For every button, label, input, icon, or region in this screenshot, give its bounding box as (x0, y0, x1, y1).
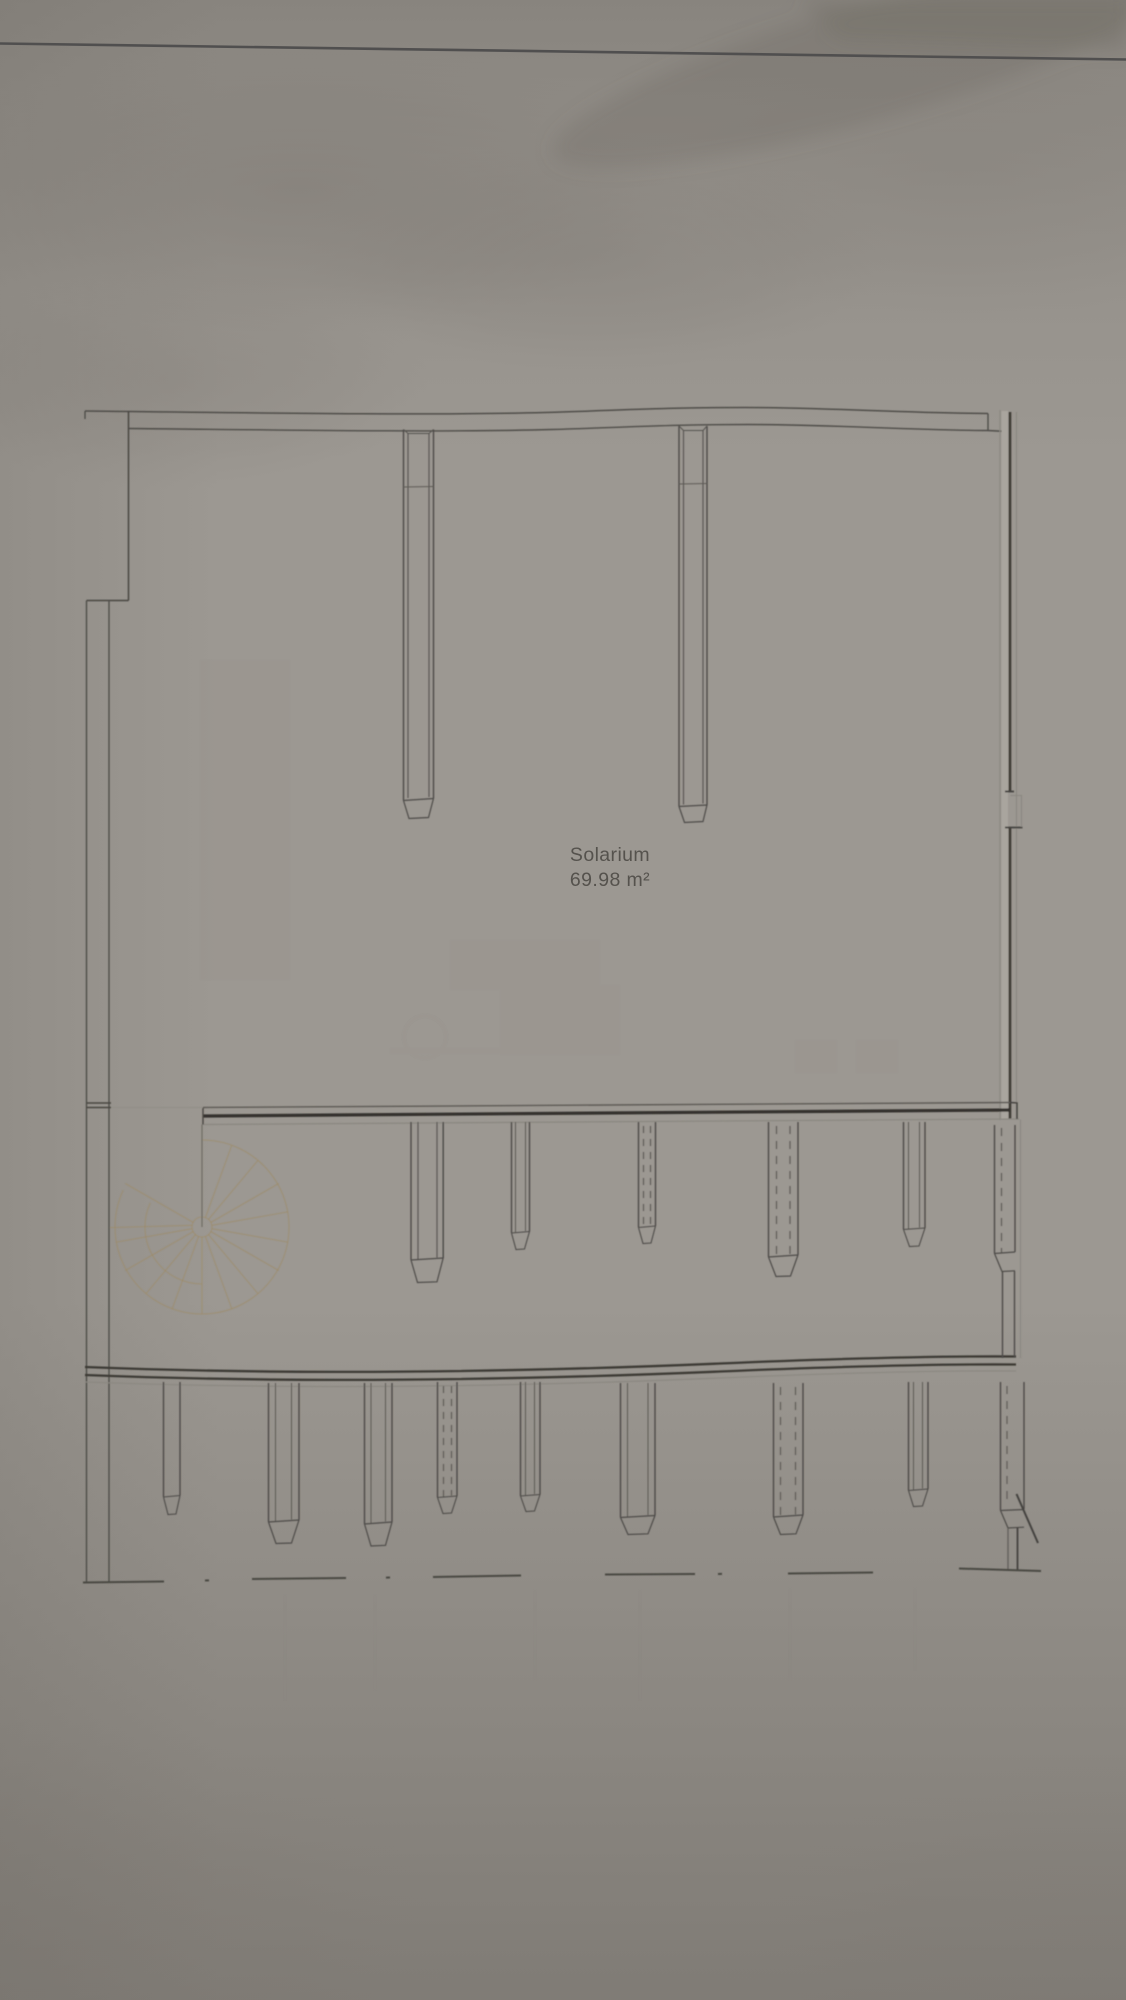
svg-text:69.98 m²: 69.98 m² (570, 869, 650, 891)
svg-text:Solarium: Solarium (570, 844, 650, 866)
